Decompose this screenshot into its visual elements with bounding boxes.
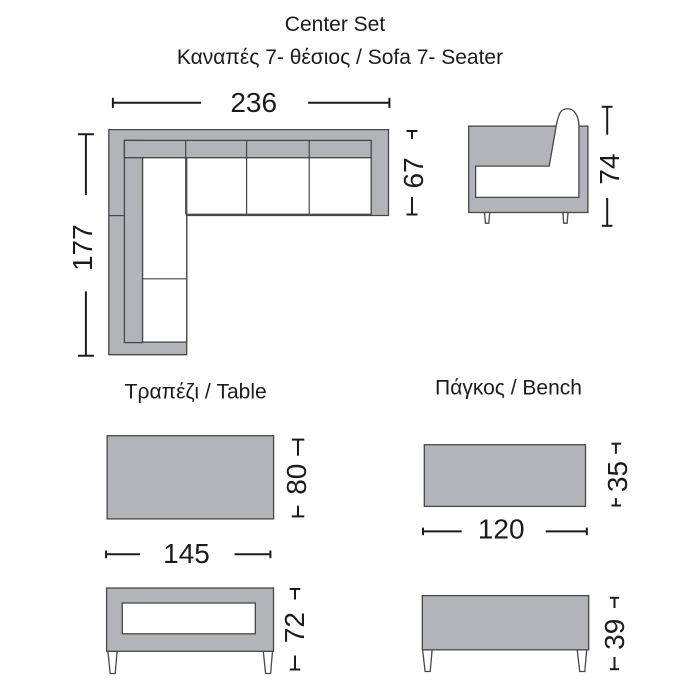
svg-text:145: 145	[163, 538, 210, 569]
svg-text:Πάγκος / Bench: Πάγκος / Bench	[435, 377, 582, 400]
svg-text:35: 35	[602, 461, 633, 492]
svg-text:Center Set: Center Set	[285, 13, 386, 36]
svg-text:177: 177	[67, 224, 98, 271]
svg-text:Τραπέζι / Table: Τραπέζι / Table	[125, 381, 267, 404]
svg-text:72: 72	[279, 612, 310, 643]
svg-text:67: 67	[398, 157, 429, 188]
svg-text:80: 80	[281, 464, 312, 495]
svg-text:74: 74	[594, 153, 625, 184]
svg-text:39: 39	[599, 619, 630, 650]
svg-text:Καναπές 7- θέσιος / Sofa 7- Se: Καναπές 7- θέσιος / Sofa 7- Seater	[177, 46, 503, 69]
svg-text:120: 120	[478, 513, 525, 544]
svg-text:236: 236	[230, 87, 277, 118]
